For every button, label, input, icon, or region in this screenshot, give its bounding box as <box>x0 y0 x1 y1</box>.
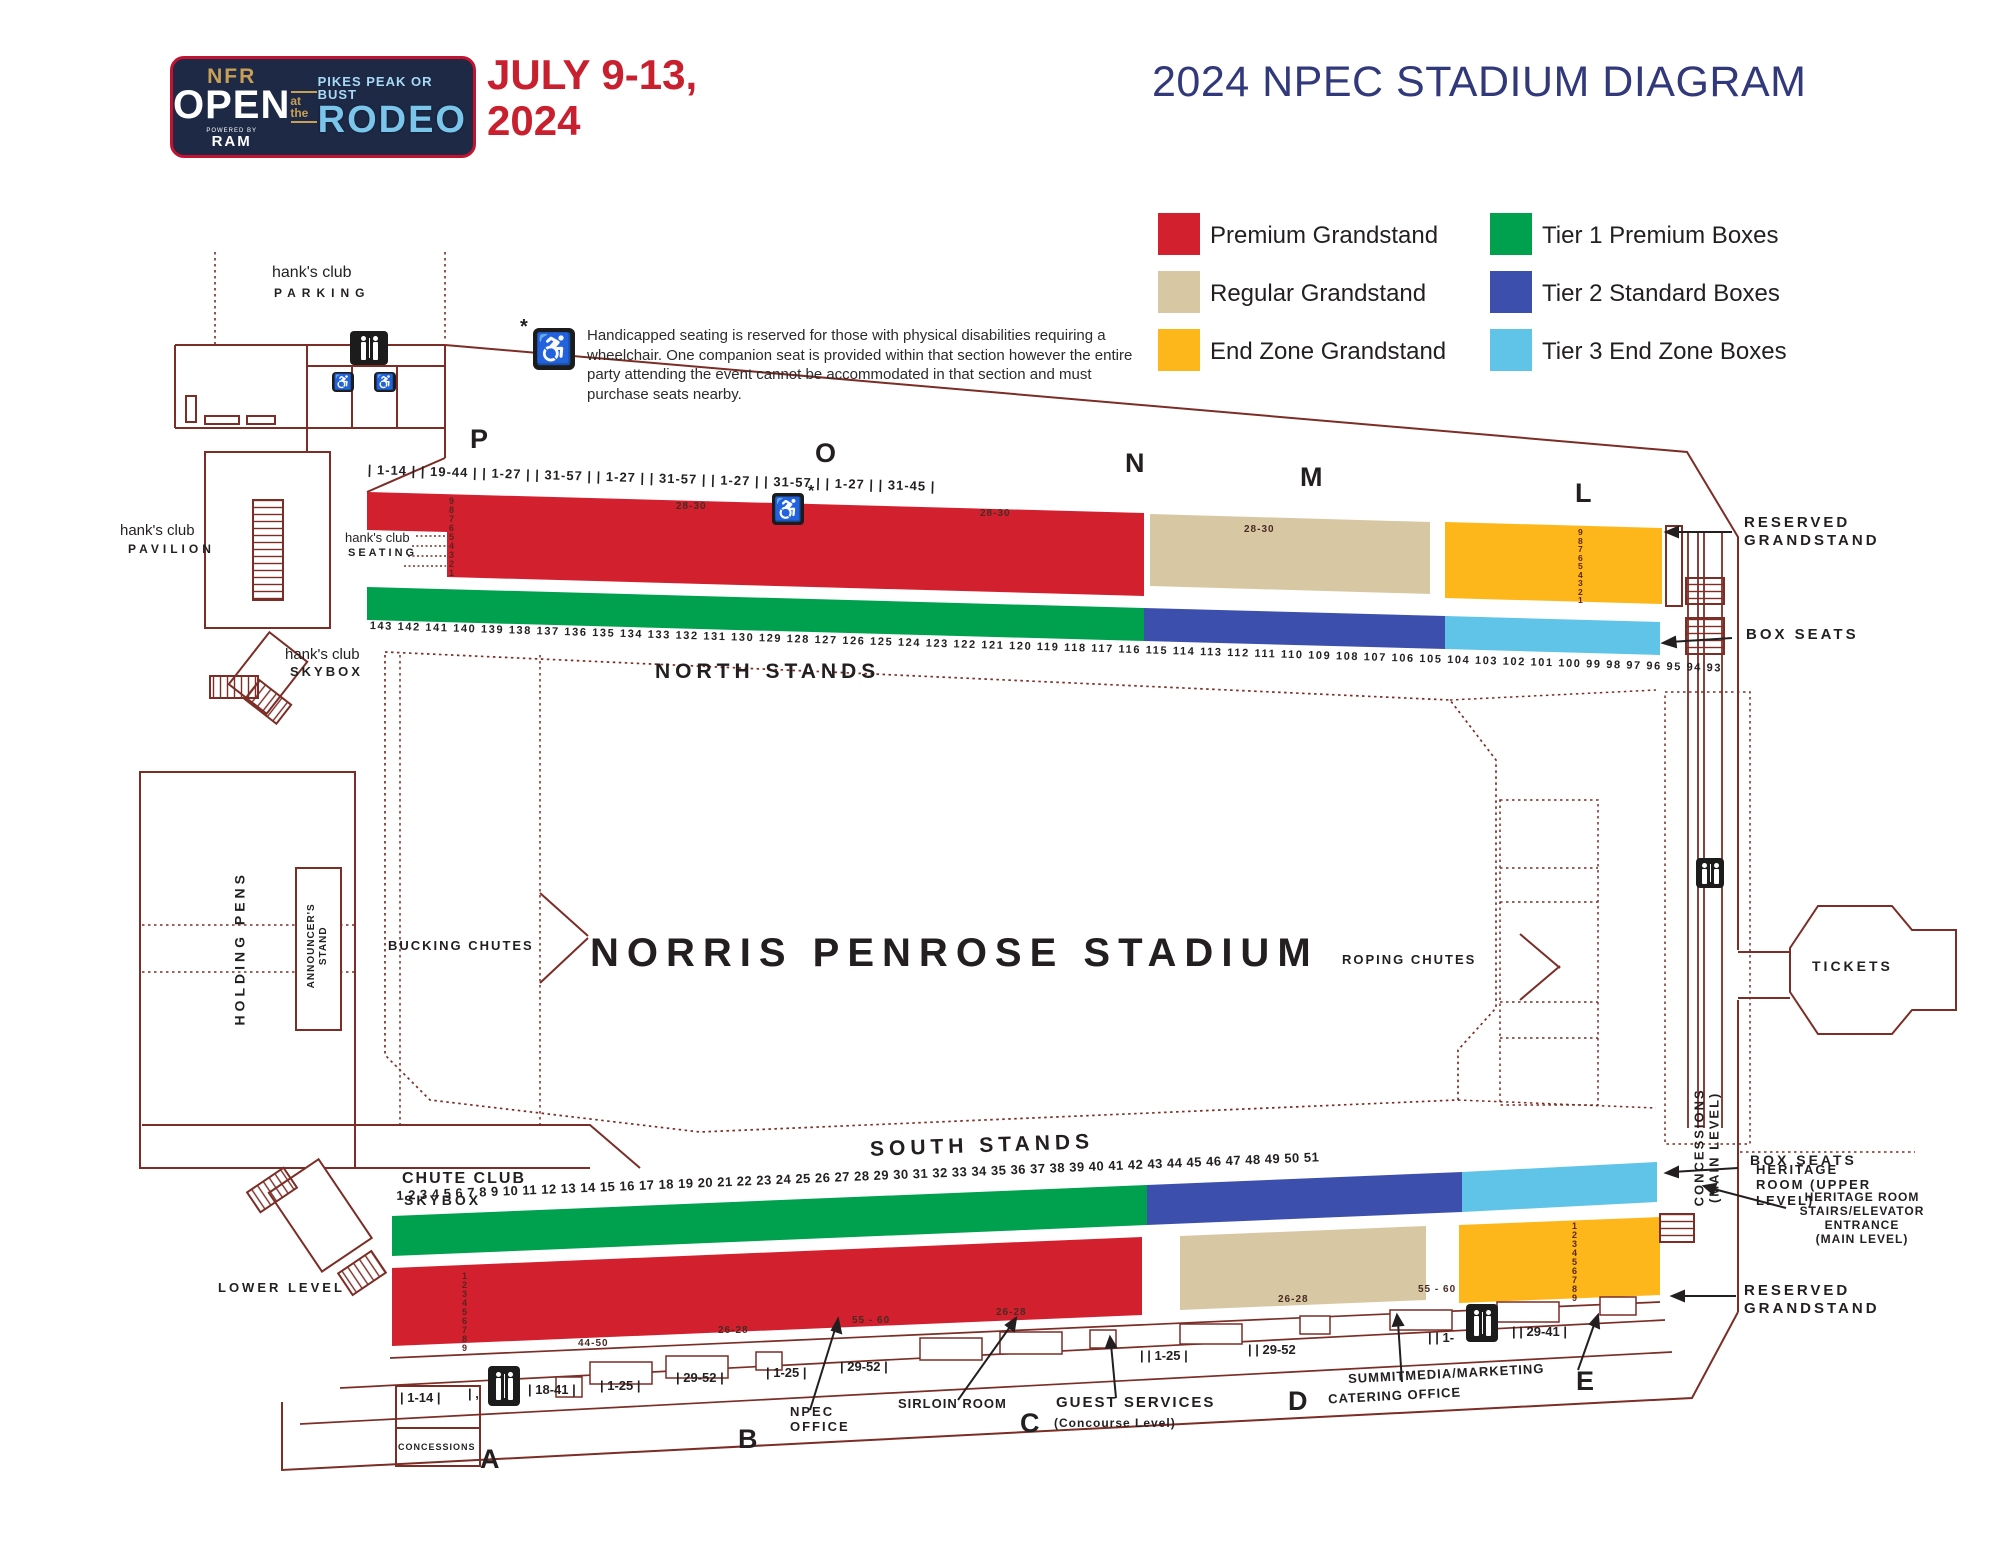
hanks-club-parking-name: hank's club <box>272 264 352 283</box>
legend-swatch-tier1-boxes <box>1490 213 1532 255</box>
lower-level-label: LOWER LEVEL <box>218 1280 345 1295</box>
restroom-divider <box>504 1374 505 1398</box>
south-endzone-grandstand-section <box>1459 1217 1660 1303</box>
south-range: | , <box>468 1386 479 1401</box>
north-row-28-30: 28-30 <box>1244 524 1275 535</box>
logo-at-the-text: at the <box>290 95 317 119</box>
north-stairs-lower <box>1686 618 1724 654</box>
restroom-building-outline <box>175 345 445 458</box>
north-box-seats-label: BOX SEATS <box>1746 626 1859 644</box>
page-title: 2024 NPEC STADIUM DIAGRAM <box>1152 58 1806 107</box>
restroom-figure <box>495 1372 502 1400</box>
restroom-figure <box>1485 1310 1492 1337</box>
legend-swatch-endzone-grandstand <box>1158 329 1200 371</box>
legend-swatch-tier2-boxes <box>1490 271 1532 313</box>
south-section-b: B <box>738 1424 758 1455</box>
sirloin-room-label: SIRLOIN ROOM <box>898 1396 1007 1411</box>
heritage-stairs-label: HERITAGE ROOM STAIRS/ELEVATOR ENTRANCE (… <box>1782 1190 1942 1247</box>
logo-open-text: OPEN <box>173 85 290 125</box>
north-premium-row-numbers: 9 8 7 6 5 4 3 2 1 <box>449 497 454 578</box>
south-tier3-box-section <box>1462 1162 1657 1212</box>
hanks-club-pavilion-name: hank's club <box>120 522 195 540</box>
nfr-open-logo-right: PIKES PEAK OR BUST RODEO <box>318 59 473 155</box>
restroom-figure <box>1701 863 1708 884</box>
south-section-d: D <box>1288 1386 1308 1417</box>
concessions-label: CONCESSIONS <box>398 1442 476 1453</box>
concessions-main-level-label: CONCESSIONS (MAIN LEVEL) <box>1692 1037 1723 1257</box>
hanks-club-seating-name: hank's club <box>345 530 410 545</box>
wheelchair-icon: ♿ <box>772 493 804 525</box>
restroom-figure <box>372 336 379 360</box>
logo-divider-bar <box>291 91 317 93</box>
arena-name: NORRIS PENROSE STADIUM <box>590 930 1319 977</box>
bucking-chutes-gates <box>540 893 588 983</box>
restroom-figure <box>360 336 367 360</box>
legend-label: End Zone Grandstand <box>1210 338 1446 366</box>
wheelchair-icon: ♿ <box>374 372 396 392</box>
south-aisle-label: 55 - 60 <box>852 1315 890 1326</box>
roping-chutes-structure <box>1500 800 1598 1105</box>
logo-at-the-divider: at the <box>290 59 317 155</box>
restroom-divider <box>1710 864 1711 882</box>
legend-label: Tier 2 Standard Boxes <box>1542 280 1780 308</box>
legend-label: Tier 3 End Zone Boxes <box>1542 338 1787 366</box>
south-aisle-label: 26-28 <box>718 1325 749 1336</box>
logo-ram-text: RAM <box>212 134 252 149</box>
roping-chutes-label: ROPING CHUTES <box>1342 952 1476 967</box>
north-section-m: M <box>1300 462 1323 493</box>
announcer-stand-label: ANNOUNCER'S STAND <box>306 861 330 1031</box>
south-range: | | 1-25 | <box>1140 1348 1188 1363</box>
guest-services-sublabel: (Concourse Level) <box>1054 1416 1176 1430</box>
south-aisle-label: 55 - 60 <box>1418 1284 1456 1295</box>
legend-label: Premium Grandstand <box>1210 222 1438 250</box>
wheelchair-icon: ♿ <box>533 328 575 370</box>
hanks-club-skybox-label: SKYBOX <box>290 664 363 679</box>
bucking-chute-lanes <box>400 655 540 1128</box>
south-aisle-label: 26-28 <box>996 1307 1027 1318</box>
north-row-28-30: 28-30 <box>676 501 707 512</box>
note-asterisk: * <box>520 316 528 340</box>
bucking-chutes-label: BUCKING CHUTES <box>388 938 534 953</box>
north-section-n: N <box>1125 448 1145 479</box>
hanks-club-skybox-name: hank's club <box>285 646 360 664</box>
south-range: | 1-14 | <box>400 1390 441 1405</box>
legend-label: Tier 1 Premium Boxes <box>1542 222 1779 250</box>
north-regular-grandstand-section <box>1150 514 1430 594</box>
stadium-diagram-page: NFR OPEN POWERED BY RAM at the PIKES PEA… <box>0 0 2000 1545</box>
guest-services-label: GUEST SERVICES <box>1056 1394 1215 1412</box>
north-stairs-upper <box>1686 578 1724 604</box>
north-row-28-30: 28-30 <box>980 508 1011 519</box>
handicap-note-text: Handicapped seating is reserved for thos… <box>587 326 1149 404</box>
north-tier2-box-section <box>1144 608 1445 649</box>
south-stairs <box>1660 1214 1694 1242</box>
pavilion-stairs <box>253 500 283 600</box>
south-range: | 1-25 | <box>766 1365 807 1380</box>
legend-swatch-regular-grandstand <box>1158 271 1200 313</box>
nfr-open-logo-left: NFR OPEN POWERED BY RAM <box>173 59 290 155</box>
south-section-a: A <box>480 1444 500 1475</box>
restroom-figure <box>507 1372 514 1400</box>
nfr-open-logo: NFR OPEN POWERED BY RAM at the PIKES PEA… <box>170 56 476 158</box>
handicap-asterisk: * <box>808 483 814 502</box>
south-range: | 1-25 | <box>600 1378 641 1393</box>
north-section-p: P <box>470 424 488 455</box>
north-section-l: L <box>1575 478 1592 509</box>
legend-swatch-premium-grandstand <box>1158 213 1200 255</box>
restroom-figure <box>1713 863 1720 884</box>
north-endzone-grandstand-section <box>1445 522 1662 604</box>
chute-club-stairs-2 <box>338 1251 386 1295</box>
roping-chutes-gates <box>1520 934 1560 1000</box>
restroom-icon <box>350 331 388 365</box>
holding-pens-label: HOLDING PENS <box>232 838 249 1058</box>
tickets-label: TICKETS <box>1812 958 1893 975</box>
restroom-icon <box>1696 858 1724 888</box>
south-range: | | 1- <box>1428 1330 1454 1345</box>
south-range: | | 29-41 | <box>1512 1324 1567 1339</box>
arena-outline <box>385 652 1496 1132</box>
legend-label: Regular Grandstand <box>1210 280 1426 308</box>
south-section-e: E <box>1576 1366 1594 1397</box>
wheelchair-icon: ♿ <box>332 372 354 392</box>
npec-office-label: NPEC OFFICE <box>790 1404 850 1435</box>
south-box-seats-label: BOX SEATS <box>1750 1152 1857 1169</box>
restroom-icon <box>488 1366 520 1406</box>
north-section-o: O <box>815 438 836 469</box>
restroom-divider <box>1482 1312 1483 1335</box>
restroom-icon <box>1466 1304 1498 1342</box>
north-tier3-box-section <box>1445 616 1660 655</box>
south-tier2-box-section <box>1147 1172 1462 1225</box>
south-reserved-grandstand-label: RESERVED GRANDSTAND <box>1744 1282 1880 1317</box>
hanks-club-parking-label: PARKING <box>274 286 370 300</box>
north-premium-grandstand-section <box>367 492 1144 596</box>
logo-divider-bar <box>291 121 317 123</box>
logo-rodeo-text: RODEO <box>318 101 467 139</box>
logo-tagline-text: PIKES PEAK OR BUST <box>318 75 467 101</box>
restroom-divider <box>369 338 370 358</box>
north-reserved-grandstand-label: RESERVED GRANDSTAND <box>1744 514 1880 549</box>
south-range: | 29-52 | <box>840 1359 888 1374</box>
south-range: | | 29-52 <box>1248 1342 1296 1357</box>
hanks-club-seating-label: SEATING <box>348 547 417 560</box>
chute-club-name: CHUTE CLUB <box>402 1170 526 1189</box>
south-aisle-label: 44-50 <box>578 1338 609 1349</box>
north-stands-label: NORTH STANDS <box>655 660 880 685</box>
south-aisle-label: 26-28 <box>1278 1294 1309 1305</box>
event-dates: JULY 9-13, 2024 <box>487 52 697 144</box>
south-endzone-row-numbers: 1 2 3 4 5 6 7 8 9 <box>1572 1222 1577 1303</box>
south-range: | 18-41 | <box>528 1382 576 1397</box>
south-range: | 29-52 | <box>676 1370 724 1385</box>
chute-club-skybox-label: SKYBOX <box>404 1192 481 1209</box>
legend-swatch-tier3-boxes <box>1490 329 1532 371</box>
restroom-figure <box>1473 1310 1480 1337</box>
hanks-club-pavilion-label: PAVILION <box>128 542 215 556</box>
south-premium-row-numbers: 1 2 3 4 5 6 7 8 9 <box>462 1272 467 1353</box>
south-section-c: C <box>1020 1408 1040 1439</box>
north-endzone-row-numbers: 9 8 7 6 5 4 3 2 1 <box>1578 528 1583 605</box>
